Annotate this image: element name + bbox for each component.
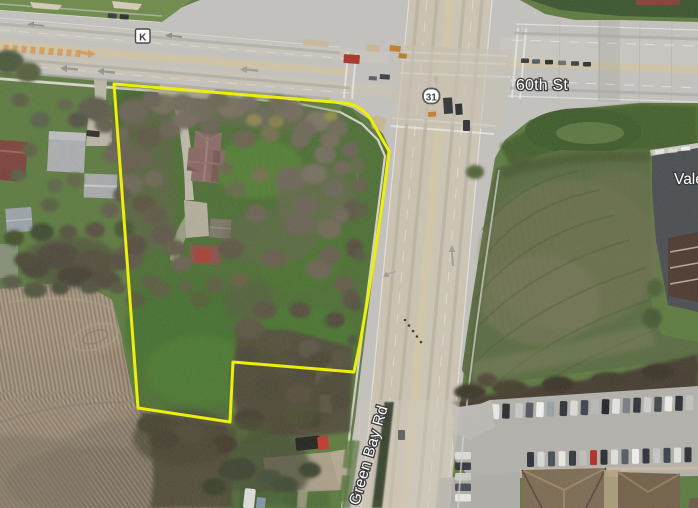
svg-text:Valeo: Valeo	[674, 171, 698, 188]
svg-text:31: 31	[426, 93, 438, 104]
svg-text:60th St: 60th St	[516, 77, 568, 94]
svg-text:K: K	[139, 33, 147, 44]
